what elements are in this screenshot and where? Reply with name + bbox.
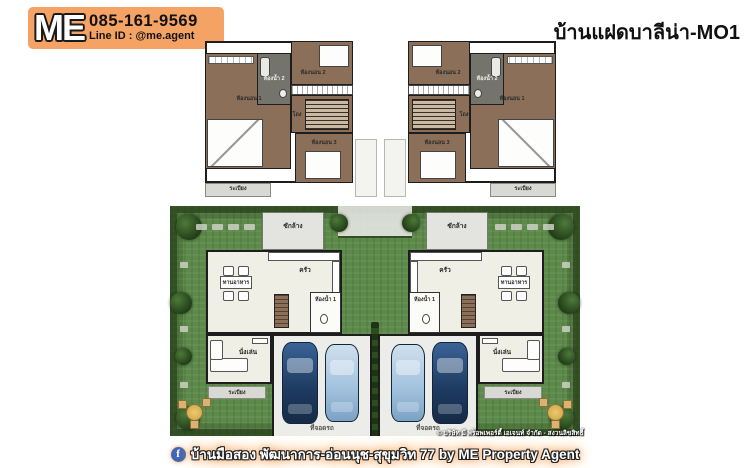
- ground-unit-left: ซักล้าง ครัว ทานอาหาร ห้องน้ำ 1 นั่งเล่น…: [170, 206, 375, 436]
- second-floor-plan-left: ห้องนอน 1 ห้องนอน 2 ห้องนอน 3 ห้องน้ำ 2 …: [199, 33, 377, 201]
- car-rear-window: [288, 404, 312, 414]
- tree-icon: [558, 292, 580, 314]
- tree-icon: [558, 348, 575, 365]
- bathtub-icon: [491, 57, 501, 77]
- chair-icon: [223, 291, 234, 301]
- stepping-stone-icon: [562, 326, 570, 332]
- outdoor-seat-icon: [190, 420, 199, 429]
- footer-caption: f บ้านมือสอง พัฒนาการ-อ่อนนุช-สุขุมวิท 7…: [0, 443, 750, 465]
- balcony: [490, 183, 556, 197]
- toilet-icon: [279, 89, 287, 98]
- logo-me-text: ME: [34, 10, 84, 46]
- stepping-stone-icon: [495, 224, 506, 230]
- facebook-icon: f: [171, 447, 186, 462]
- closet-icon: [408, 85, 470, 95]
- chair-icon: [238, 291, 249, 301]
- bed-icon: [498, 119, 554, 167]
- stairs-icon: [274, 294, 289, 328]
- sofa-icon: [502, 358, 540, 372]
- stepping-stone-icon: [511, 224, 522, 230]
- stepping-stone-icon: [244, 224, 255, 230]
- bed-icon: [412, 45, 442, 67]
- tree-icon: [402, 214, 420, 232]
- page-title: บ้านแฝดบาลีน่า-MO1: [554, 16, 740, 48]
- stairs-icon: [305, 99, 349, 130]
- closet-icon: [208, 56, 254, 64]
- toilet-icon: [422, 314, 430, 324]
- stepping-stone-icon: [527, 224, 538, 230]
- chair-icon: [501, 291, 512, 301]
- outdoor-seat-icon: [178, 400, 187, 409]
- sofa-icon: [527, 340, 540, 360]
- stepping-stone-icon: [228, 224, 239, 230]
- property-flyer: ME 085-161-9569 Line ID : @me.agent บ้าน…: [0, 0, 750, 468]
- bed-icon: [207, 119, 263, 167]
- stepping-stone-icon: [180, 382, 188, 388]
- car-icon-light-blue: [391, 344, 425, 422]
- tv-cabinet-icon: [482, 338, 498, 344]
- chair-icon: [238, 266, 249, 276]
- stairs-icon: [412, 99, 456, 130]
- stepping-stone-icon: [180, 262, 188, 268]
- bed-icon: [319, 45, 349, 67]
- car-rear-window: [331, 402, 353, 412]
- kitchen-counter-icon: [332, 261, 340, 293]
- second-floor-plan-right: ห้องนอน 1 ห้องนอน 2 ห้องนอน 3 ห้องน้ำ 2 …: [384, 33, 562, 201]
- ground-unit-right: ซักล้าง ครัว ทานอาหาร ห้องน้ำ 1 นั่งเล่น…: [375, 206, 580, 436]
- outdoor-seat-icon: [563, 400, 572, 409]
- chair-icon: [501, 266, 512, 276]
- kitchen-counter-icon: [410, 261, 418, 293]
- caption-text: บ้านมือสอง พัฒนาการ-อ่อนนุช-สุขุมวิท 77 …: [191, 443, 580, 465]
- chair-icon: [516, 291, 527, 301]
- stepping-stone-icon: [196, 224, 207, 230]
- line-id: Line ID : @me.agent: [89, 30, 198, 43]
- logo-contact: 085-161-9569 Line ID : @me.agent: [89, 12, 198, 43]
- kitchen-counter-icon: [410, 252, 482, 261]
- tree-icon: [330, 214, 348, 232]
- outdoor-seat-icon: [539, 398, 548, 407]
- toilet-icon: [474, 89, 482, 98]
- dining-table-icon: [220, 276, 252, 289]
- copyright-watermark: © บริษัท มี พร็อพเพอร์ตี้ เอเจนท์ จำกัด …: [437, 428, 583, 438]
- outdoor-seat-icon: [202, 398, 211, 407]
- agency-logo: ME 085-161-9569 Line ID : @me.agent: [28, 7, 224, 49]
- terrace: [484, 386, 542, 399]
- car-icon-light-blue: [325, 344, 359, 422]
- outdoor-table-icon: [186, 404, 203, 421]
- bathtub-icon: [260, 57, 270, 77]
- bathroom-1: [310, 292, 341, 333]
- car-rear-window: [438, 404, 462, 414]
- stepping-stone-icon: [180, 326, 188, 332]
- laundry-room: [262, 212, 324, 250]
- stepping-stone-icon: [562, 262, 570, 268]
- bathroom-1: [409, 292, 440, 333]
- toilet-icon: [320, 314, 328, 324]
- car-windshield: [287, 358, 313, 373]
- chair-icon: [223, 266, 234, 276]
- stairs-icon: [461, 294, 476, 328]
- bed-icon: [420, 151, 456, 179]
- stepping-stone-icon: [212, 224, 223, 230]
- laundry-room: [426, 212, 488, 250]
- terrace: [208, 386, 266, 399]
- closet-icon: [507, 56, 553, 64]
- ground-site-plan: ซักล้าง ครัว ทานอาหาร ห้องน้ำ 1 นั่งเล่น…: [170, 206, 580, 436]
- stepping-stone-icon: [562, 382, 570, 388]
- bed-icon: [305, 151, 341, 179]
- roof-below: [355, 139, 377, 197]
- tv-cabinet-icon: [252, 338, 268, 344]
- balcony: [205, 183, 271, 197]
- car-windshield: [396, 360, 420, 375]
- car-windshield: [330, 360, 354, 375]
- phone-number: 085-161-9569: [89, 12, 198, 30]
- stepping-stone-icon: [543, 224, 554, 230]
- car-icon-dark-blue: [282, 342, 318, 424]
- sofa-icon: [210, 340, 223, 360]
- car-windshield: [437, 358, 463, 373]
- chair-icon: [516, 266, 527, 276]
- tree-icon: [175, 348, 192, 365]
- closet-icon: [291, 85, 353, 95]
- kitchen-counter-icon: [268, 252, 340, 261]
- tree-icon: [170, 292, 192, 314]
- dining-table-icon: [498, 276, 530, 289]
- car-rear-window: [397, 402, 419, 412]
- car-icon-dark-blue: [432, 342, 468, 424]
- outdoor-table-icon: [547, 404, 564, 421]
- sofa-icon: [210, 358, 248, 372]
- roof-below: [384, 139, 406, 197]
